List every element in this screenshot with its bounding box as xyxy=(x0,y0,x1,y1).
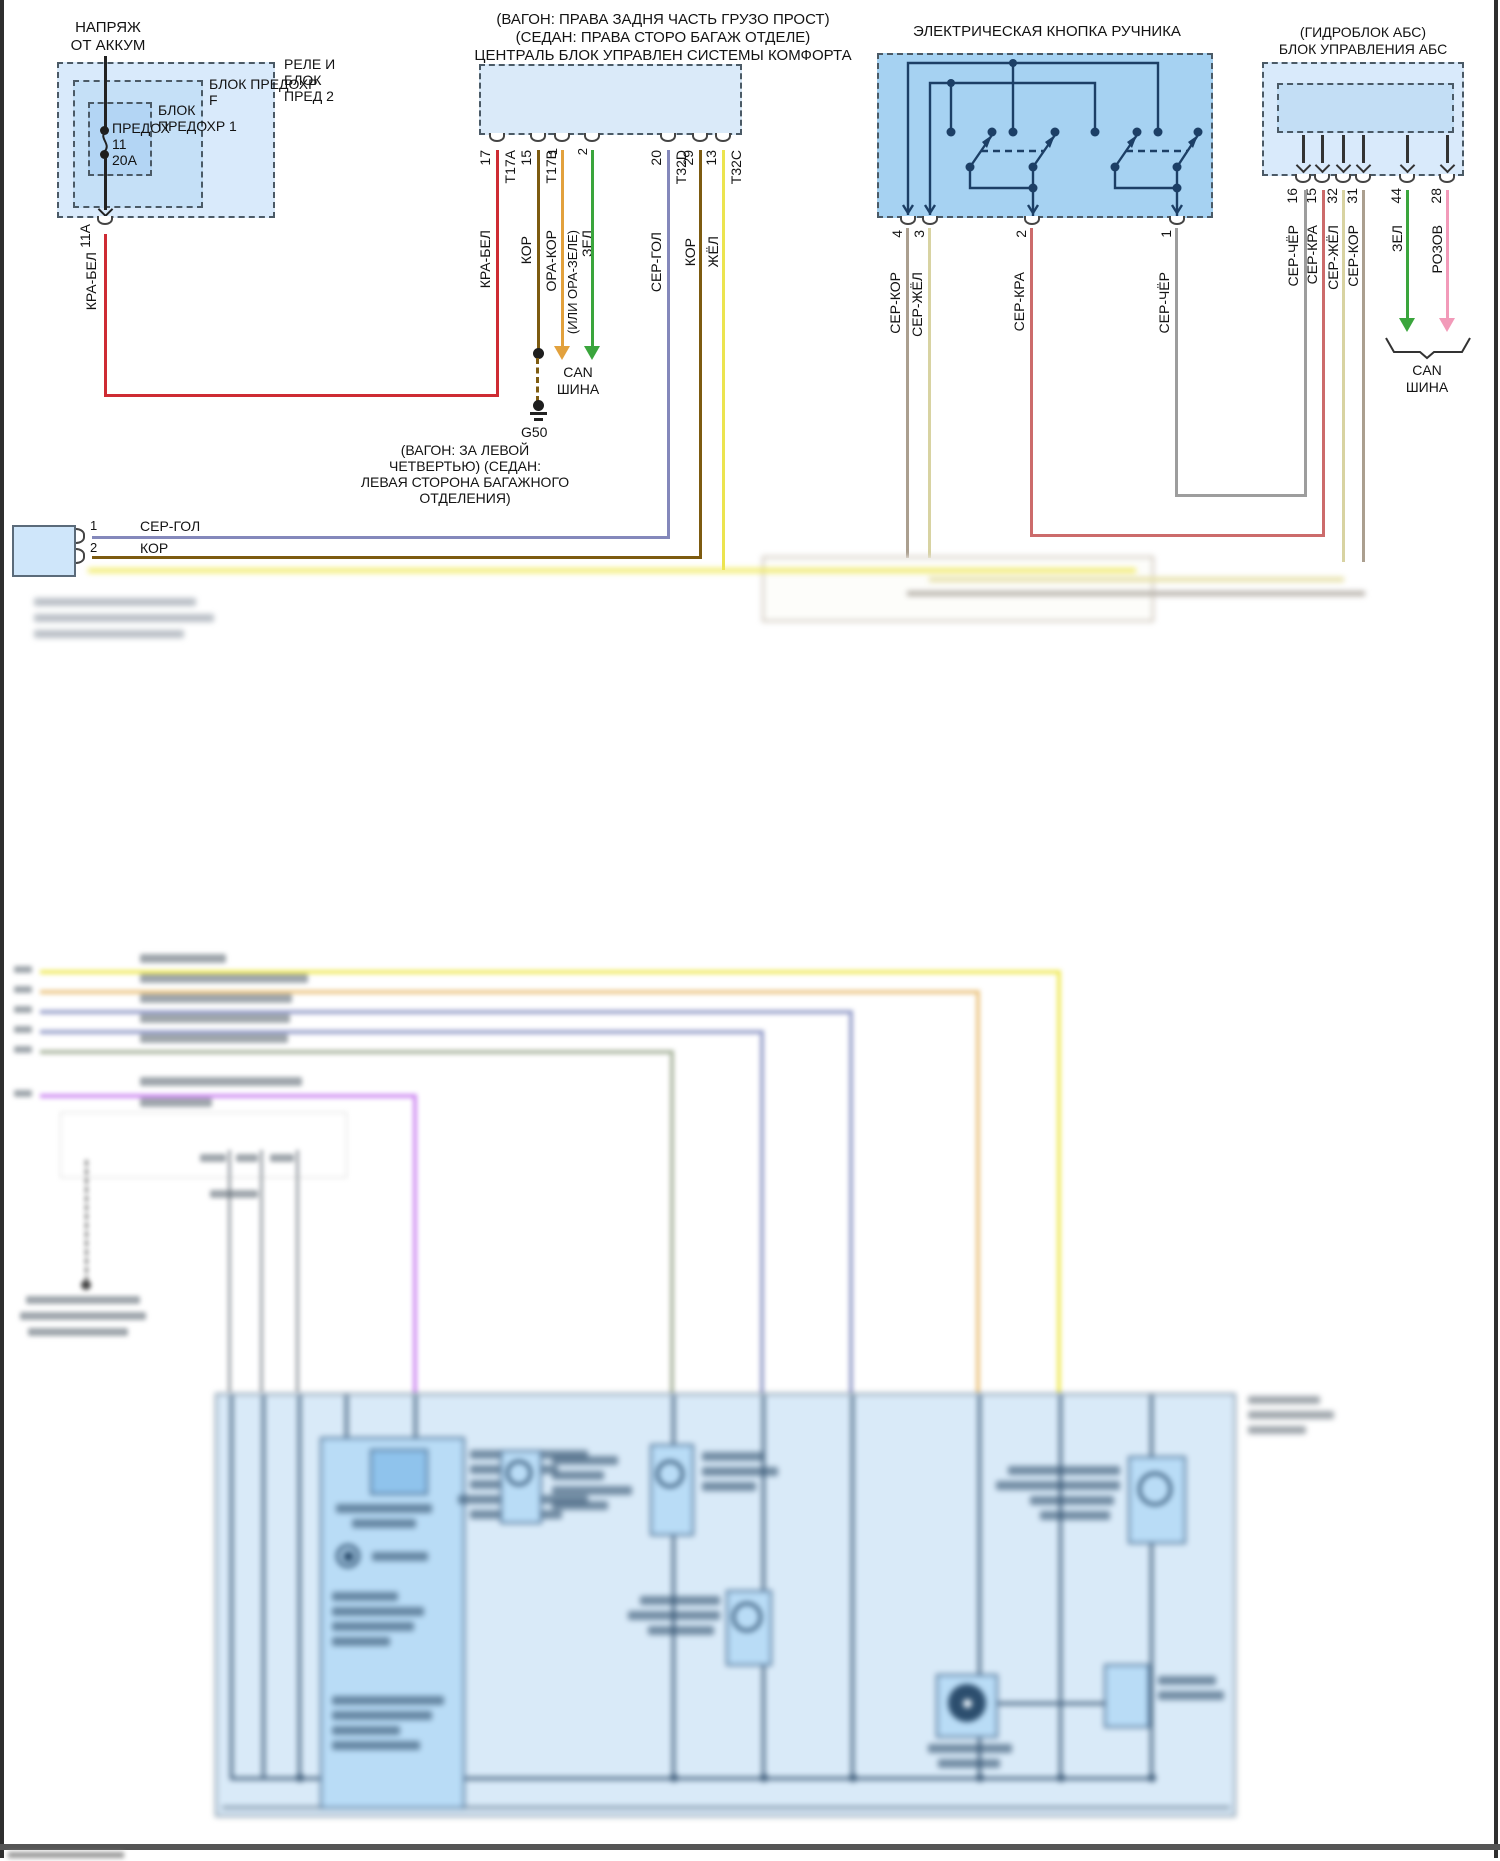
blurred-pump-circle xyxy=(1138,1472,1172,1506)
blurred-text-line xyxy=(140,954,226,963)
connector-arc-icon xyxy=(1399,174,1415,183)
blurred-rail-dot xyxy=(296,1774,304,1782)
blurred-text-line xyxy=(140,974,308,983)
blurred-text-line xyxy=(1030,1496,1114,1505)
blurred-inner-small-box xyxy=(370,1449,428,1495)
wire-label-zhel: ЖЁЛ xyxy=(706,236,721,267)
comfort-pin2-number: 2 xyxy=(576,148,590,155)
can-bus-label-line2: ШИНА xyxy=(553,381,603,397)
abs-pin31-number: 31 xyxy=(1345,188,1360,204)
blurred-aux-box xyxy=(1104,1664,1150,1728)
blurred-text-line xyxy=(928,1744,1012,1753)
blurred-wire-violet xyxy=(40,1094,417,1098)
ground-symbol-icon xyxy=(534,418,543,421)
wire-label-ser-gol: СЕР-ГОЛ xyxy=(649,232,664,292)
blurred-text-line xyxy=(372,1552,428,1561)
blurred-stub-wire xyxy=(260,1150,263,1393)
blurred-text-line xyxy=(34,614,214,622)
blurred-text-line xyxy=(1248,1396,1320,1404)
blurred-vertical-wire xyxy=(262,1395,265,1779)
button-pin3-number: 3 xyxy=(912,230,927,238)
wire-kor2-vertical xyxy=(699,150,702,558)
blurred-text-line xyxy=(200,1154,226,1162)
connector-arc-icon xyxy=(1355,174,1371,183)
blurred-text-line xyxy=(628,1611,720,1620)
blurred-wire-ser-kor-loop xyxy=(907,591,1365,596)
wire-kor2-horizontal xyxy=(92,556,702,559)
abs-title-line2: БЛОК УПРАВЛЕНИЯ АБС xyxy=(1258,41,1468,57)
battery-source-label-line1: НАПРЯЖ xyxy=(58,20,158,36)
blurred-wire-slate2-v xyxy=(760,1030,764,1395)
connector-arc-icon xyxy=(1169,216,1185,225)
blurred-text-line xyxy=(552,1471,604,1480)
wire-label-ser-zhel-button: СЕР-ЖЁЛ xyxy=(910,272,925,337)
comfort-module-title-line1: (ВАГОН: ПРАВА ЗАДНЯ ЧАСТЬ ГРУЗО ПРОСТ) xyxy=(428,12,898,28)
wire-label-ser-kra-button: СЕР-КРА xyxy=(1012,272,1027,331)
blurred-text-line xyxy=(140,1098,212,1107)
blurred-wire-sage-v xyxy=(670,1050,674,1395)
can-bundle-brace-icon xyxy=(1384,336,1472,360)
brake-button-title: ЭЛЕКТРИЧЕСКАЯ КНОПКА РУЧНИКА xyxy=(870,24,1224,40)
blurred-wire-violet-v xyxy=(413,1094,417,1395)
blurred-box-outline xyxy=(60,1112,347,1178)
blurred-vertical-wire xyxy=(1059,1395,1062,1779)
blurred-text-line xyxy=(648,1626,714,1635)
blurred-box-outline xyxy=(762,556,1154,622)
connector-arc-icon xyxy=(922,216,938,225)
blurred-text-line xyxy=(332,1711,432,1720)
comfort-module-title-line3: ЦЕНТРАЛЬ БЛОК УПРАВЛЕН СИСТЕМЫ КОМФОРТА xyxy=(428,48,898,64)
ground-note-line4: ОТДЕЛЕНИЯ) xyxy=(330,490,600,506)
blurred-vertical-wire xyxy=(230,1395,233,1779)
blurred-text-line xyxy=(332,1726,400,1735)
fuse-panel-label-line2: F xyxy=(209,92,218,108)
blurred-wire-ser-zhel-loop xyxy=(929,577,1344,582)
left-connector-box xyxy=(12,525,76,577)
fuse-exit-connector-icon xyxy=(97,216,113,225)
button-pin2-number: 2 xyxy=(1014,230,1029,238)
blurred-footer-text xyxy=(8,1852,124,1858)
fuse-number-label: 11 xyxy=(112,136,127,152)
brake-button-internal-circuit xyxy=(879,55,1215,218)
ground-symbol-icon xyxy=(530,412,547,415)
blurred-text-line xyxy=(702,1452,764,1461)
abs-can-label-line1: CAN xyxy=(1402,362,1452,378)
abs-inner-box xyxy=(1277,83,1454,133)
wire-label-kra-bel-left: КРА-БЕЛ xyxy=(84,252,99,310)
connector-arc-icon xyxy=(660,133,676,142)
blurred-text-line xyxy=(26,1296,140,1304)
blurred-text-line xyxy=(332,1622,414,1631)
fuse-exit-pin-label: 11А xyxy=(78,224,93,248)
fuse-panel-label-line1: БЛОК ПРЕДОХР xyxy=(209,76,317,92)
wire-label-ser-cher-button: СЕР-ЧЁР xyxy=(1157,272,1172,333)
wire-label-ora-kor: ОРА-КОР xyxy=(544,230,559,292)
wire-label-kor-horizontal: КОР xyxy=(140,540,168,556)
wire-ser-cher-button xyxy=(1175,228,1178,496)
connector-arc-icon xyxy=(554,133,570,142)
ground-id-label: G50 xyxy=(521,424,547,440)
ground-note-line1: (ВАГОН: ЗА ЛЕВОЙ xyxy=(330,442,600,458)
blurred-text-line xyxy=(336,1504,432,1513)
blurred-wire-orange-v xyxy=(976,990,980,1395)
blurred-link-line xyxy=(998,1702,1106,1705)
blurred-text-line xyxy=(332,1637,390,1646)
wire-label-ser-cher-abs: СЕР-ЧЁР xyxy=(1286,225,1301,286)
wire-label-ser-kor-abs: СЕР-КОР xyxy=(1346,225,1361,287)
blurred-valve-circle xyxy=(656,1460,684,1488)
wire-ser-cher-link xyxy=(1175,494,1307,497)
wire-label-ser-zhel-abs: СЕР-ЖЁЛ xyxy=(1326,225,1341,290)
blurred-text-line xyxy=(140,1034,288,1043)
fuse-amp-label: 20А xyxy=(112,152,137,168)
wire-ser-kor-abs xyxy=(1362,190,1365,562)
wire-label-ser-gol-horizontal: СЕР-ГОЛ xyxy=(140,518,200,534)
comfort-pin17-number: 17 xyxy=(478,150,493,166)
button-pin1-number: 1 xyxy=(1159,230,1174,238)
ground-note-line3: ЛЕВАЯ СТОРОНА БАГАЖНОГО xyxy=(330,474,600,490)
blurred-text-line xyxy=(1158,1691,1224,1700)
blurred-pin-tick xyxy=(14,986,32,993)
blurred-rail-dot xyxy=(976,1774,984,1782)
relay-box-label-line1: РЕЛЕ И xyxy=(284,56,335,72)
wire-rozov-abs xyxy=(1446,190,1449,318)
abs-pin28-number: 28 xyxy=(1429,188,1444,204)
blurred-text-line xyxy=(236,1154,258,1162)
wire-label-kor-ground: КОР xyxy=(519,236,534,264)
wire-kra-bel-horizontal xyxy=(104,394,499,397)
blurred-motor-center xyxy=(963,1699,972,1708)
blurred-rail-dot xyxy=(670,1774,678,1782)
battery-feed-line xyxy=(104,56,107,130)
page: НАПРЯЖ ОТ АККУМ РЕЛЕ И БЛОК ПРЕД 2 БЛОК … xyxy=(0,0,1500,1861)
connector-arc-icon xyxy=(76,548,85,564)
comfort-pin20-number: 20 xyxy=(649,150,664,166)
blurred-text-line xyxy=(552,1486,632,1495)
connector-arc-icon xyxy=(1295,174,1311,183)
abs-pin16-number: 16 xyxy=(1285,188,1300,204)
left-connector-pin1-number: 1 xyxy=(90,518,97,534)
wire-kra-bel-vertical-right xyxy=(496,150,499,396)
abs-can-label-line2: ШИНА xyxy=(1402,379,1452,395)
comfort-pin17-connector: Т17А xyxy=(503,150,518,183)
wire-ser-zhel-button xyxy=(928,228,931,558)
wire-label-kor2: КОР xyxy=(683,238,698,266)
blurred-text-line xyxy=(640,1596,720,1605)
blurred-text-line xyxy=(996,1481,1120,1490)
comfort-pin29-number: 29 xyxy=(681,150,696,166)
blurred-pin-tick xyxy=(14,1006,32,1013)
wire-kor-ground-dashed xyxy=(536,358,539,402)
blurred-rail-dot xyxy=(1057,1774,1065,1782)
comfort-pin13-number: 13 xyxy=(704,150,719,166)
wire-ser-gol-horizontal xyxy=(92,536,670,539)
blurred-text-line xyxy=(332,1696,444,1705)
blurred-text-line xyxy=(140,1014,290,1023)
comfort-pin13-connector: Т32С xyxy=(729,150,744,184)
blurred-valve-circle xyxy=(506,1460,532,1486)
button-pin4-number: 4 xyxy=(890,230,905,238)
abs-title-line1: (ГИДРОБЛОК АБС) xyxy=(1258,24,1468,40)
wire-label-rozov-abs: РОЗОВ xyxy=(1430,225,1445,273)
blurred-dashed-wire xyxy=(85,1160,88,1282)
connector-arc-icon xyxy=(1439,174,1455,183)
comfort-module-title-line2: (СЕДАН: ПРАВА СТОРО БАГАЖ ОТДЕЛЕ) xyxy=(428,30,898,46)
wire-zel-abs xyxy=(1406,190,1409,318)
blurred-pin-tick xyxy=(14,966,32,973)
blurred-rail-dot xyxy=(760,1774,768,1782)
blurred-ground-dot xyxy=(81,1280,91,1290)
can-arrow-icon xyxy=(1439,318,1455,332)
blurred-rail-dot xyxy=(849,1774,857,1782)
blurred-text-line xyxy=(140,1077,302,1086)
blurred-text-line xyxy=(210,1190,258,1198)
blurred-text-line xyxy=(332,1607,424,1616)
connector-arc-icon xyxy=(1024,216,1040,225)
blurred-text-line xyxy=(20,1312,146,1320)
blurred-text-line xyxy=(28,1328,128,1336)
blurred-rail-dot xyxy=(1148,1774,1156,1782)
wire-label-zel-abs: ЗЕЛ xyxy=(1390,225,1405,252)
blurred-text-line xyxy=(332,1592,398,1601)
blurred-text-line xyxy=(1248,1426,1306,1434)
wire-zel-can xyxy=(591,150,594,346)
wire-label-ora-kor-alt: (ИЛИ ОРА-ЗЕЛЕ) xyxy=(566,230,580,334)
blurred-text-line xyxy=(938,1759,1000,1768)
blurred-wire-zhel-loop xyxy=(88,568,1136,573)
blurred-wire-yellow-v xyxy=(1057,970,1061,1395)
connector-arc-icon xyxy=(76,528,85,544)
connector-arc-icon xyxy=(1314,174,1330,183)
page-border-left xyxy=(0,0,4,1858)
can-arrow-icon xyxy=(584,346,600,360)
blurred-valve-box xyxy=(650,1444,694,1536)
comfort-pin1-number: 1 xyxy=(546,148,560,155)
blurred-text-line xyxy=(702,1467,778,1476)
fuse-block1-label-line1: БЛОК xyxy=(158,102,195,118)
blurred-text-line xyxy=(140,994,292,1003)
abs-pin44-number: 44 xyxy=(1389,188,1404,204)
blurred-stub-wire xyxy=(228,1150,231,1393)
wire-zhel-vertical xyxy=(722,150,725,570)
ground-dot xyxy=(533,400,544,411)
ground-note-line2: ЧЕТВЕРТЬЮ) (СЕДАН: xyxy=(330,458,600,474)
connector-arc-icon xyxy=(530,133,546,142)
abs-pin32-number: 32 xyxy=(1325,188,1340,204)
connector-arc-icon xyxy=(1335,174,1351,183)
blurred-text-line xyxy=(34,598,196,606)
wire-ser-kra-button xyxy=(1030,228,1033,536)
blurred-text-line xyxy=(552,1456,618,1465)
comfort-module-box xyxy=(479,64,742,135)
blurred-pin-tick xyxy=(14,1046,32,1053)
blurred-text-line xyxy=(552,1501,608,1510)
page-border-right xyxy=(1494,0,1498,1858)
wire-ser-kra-link xyxy=(1030,534,1325,537)
connector-arc-icon xyxy=(900,216,916,225)
wire-ser-gol-vertical xyxy=(667,150,670,539)
wire-label-ser-kra-abs: СЕР-КРА xyxy=(1305,225,1320,284)
blurred-text-line xyxy=(34,630,184,638)
comfort-pin15-number: 15 xyxy=(519,150,534,166)
blurred-text-line xyxy=(270,1154,294,1162)
left-connector-pin2-number: 2 xyxy=(90,540,97,556)
fuse-name-label: ПРЕДОХ xyxy=(112,120,170,136)
blurred-vertical-wire xyxy=(1150,1395,1153,1779)
blurred-vertical-wire xyxy=(851,1395,854,1779)
blurred-valve-circle xyxy=(732,1602,762,1632)
page-border-bottom xyxy=(0,1844,1500,1850)
blurred-component-dot xyxy=(343,1551,354,1562)
wire-label-ser-kor-button: СЕР-КОР xyxy=(888,272,903,334)
connector-arc-icon xyxy=(692,133,708,142)
blurred-text-line xyxy=(332,1741,420,1750)
can-arrow-icon xyxy=(554,346,570,360)
blurred-wire-sage xyxy=(40,1050,674,1054)
connector-arc-icon xyxy=(489,133,505,142)
blurred-pin-tick xyxy=(14,1026,32,1033)
blurred-text-line xyxy=(1248,1411,1334,1419)
can-bus-label-line1: CAN xyxy=(553,364,603,380)
connector-arc-icon xyxy=(715,133,731,142)
can-arrow-icon xyxy=(1399,318,1415,332)
wire-kor-ground xyxy=(537,150,540,352)
blurred-stub-wire xyxy=(296,1150,299,1393)
blurred-text-line xyxy=(1040,1511,1110,1520)
wire-label-kra-bel-right: КРА-БЕЛ xyxy=(478,230,493,288)
blurred-vertical-wire xyxy=(298,1395,301,1779)
connector-arc-icon xyxy=(584,133,600,142)
blurred-text-line xyxy=(1158,1676,1216,1685)
wire-ora-kor-can xyxy=(561,150,564,346)
blurred-text-line xyxy=(352,1519,416,1528)
blurred-text-line xyxy=(1008,1466,1120,1475)
blurred-wire-slate1-v xyxy=(849,1010,853,1395)
blurred-text-line xyxy=(702,1482,756,1491)
battery-source-label-line2: ОТ АККУМ xyxy=(58,38,158,54)
blurred-pin-tick xyxy=(14,1090,32,1097)
wire-kra-bel-vertical-left xyxy=(104,234,107,396)
